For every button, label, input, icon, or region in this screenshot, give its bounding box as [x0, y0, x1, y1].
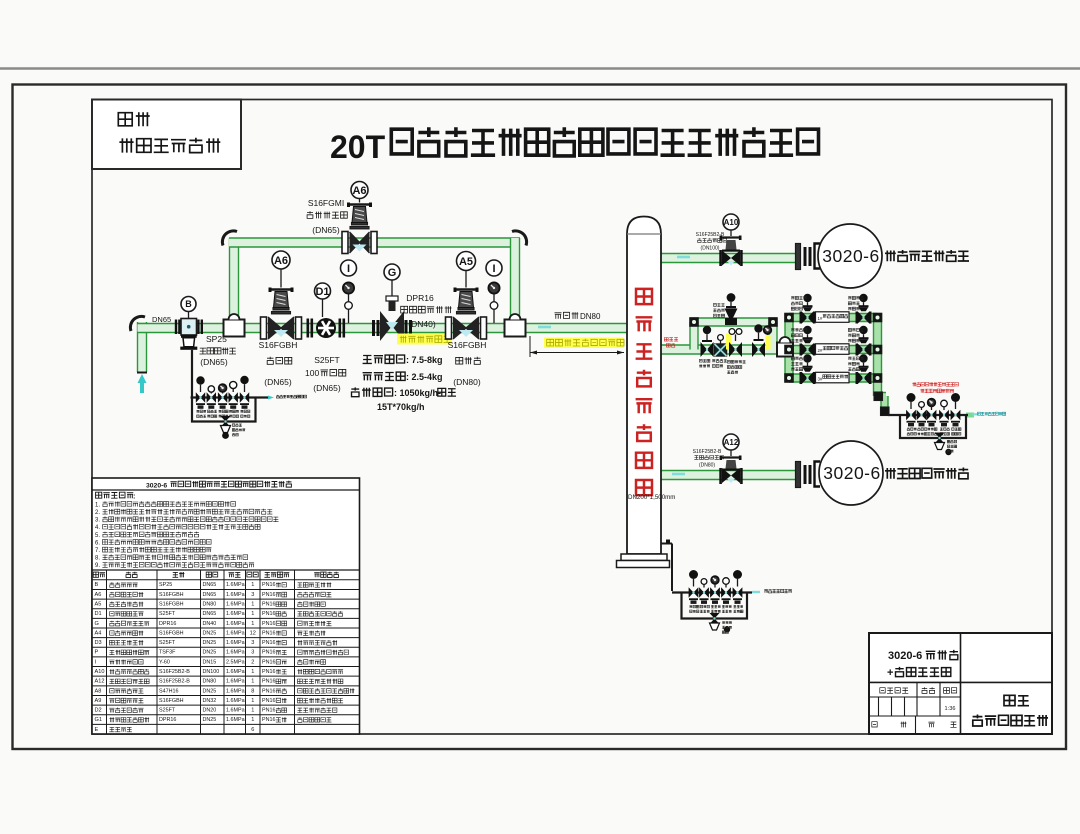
svg-text:1: 1: [251, 669, 254, 675]
svg-text:1.6MPa: 1.6MPa: [226, 592, 245, 598]
svg-text:1#: 1#: [818, 316, 823, 321]
svg-text:S16F25B2-B: S16F25B2-B: [159, 679, 190, 685]
svg-text:D1: D1: [95, 611, 102, 617]
svg-text:DN25: DN25: [203, 717, 217, 723]
svg-text:3020-6: 3020-6: [888, 650, 922, 662]
svg-text:PN16: PN16: [262, 582, 276, 588]
svg-text:100: 100: [305, 368, 319, 378]
svg-text:8: 8: [251, 688, 254, 694]
svg-text:A4: A4: [95, 630, 102, 636]
svg-text:S16F25B2-B: S16F25B2-B: [696, 232, 725, 238]
svg-text:: 2.5-4kg: : 2.5-4kg: [406, 372, 443, 382]
svg-text:1: 1: [251, 717, 254, 723]
svg-text:2.5MPa: 2.5MPa: [226, 659, 245, 665]
svg-text:(DN100): (DN100): [701, 246, 720, 252]
svg-text:1.6MPa: 1.6MPa: [226, 650, 245, 656]
svg-text:1: 1: [251, 621, 254, 627]
svg-text:1.6MPa: 1.6MPa: [226, 640, 245, 646]
svg-text:A5: A5: [95, 602, 102, 608]
svg-text:D1: D1: [315, 286, 329, 298]
svg-text:DPR16: DPR16: [159, 621, 176, 627]
svg-text:1.6MPa: 1.6MPa: [226, 698, 245, 704]
svg-text:PN16: PN16: [262, 650, 276, 656]
svg-text:G: G: [95, 621, 99, 627]
svg-text:(DN65): (DN65): [200, 357, 228, 367]
svg-text:A8: A8: [95, 688, 102, 694]
svg-text:12: 12: [250, 630, 256, 636]
svg-text:(DN80): (DN80): [699, 463, 715, 469]
svg-text:1.: 1.: [95, 502, 100, 508]
svg-text:PN16: PN16: [262, 602, 276, 608]
svg-text:1.6MPa: 1.6MPa: [226, 717, 245, 723]
svg-text:1.6MPa: 1.6MPa: [226, 611, 245, 617]
svg-text:3: 3: [251, 640, 254, 646]
svg-text:S47H16: S47H16: [159, 688, 178, 694]
svg-text:A10: A10: [724, 218, 739, 227]
svg-text:TSF3F: TSF3F: [159, 650, 176, 656]
svg-text:DN100: DN100: [203, 669, 220, 675]
svg-text:S25FT: S25FT: [159, 640, 176, 646]
svg-text:DN40: DN40: [203, 621, 217, 627]
svg-text:P: P: [95, 650, 99, 656]
svg-text:DPR16: DPR16: [159, 717, 176, 723]
svg-text:DN200*1,500mm: DN200*1,500mm: [628, 494, 675, 501]
svg-text:A6: A6: [274, 255, 288, 267]
svg-text:: 1050kg/h-: : 1050kg/h-: [394, 388, 441, 398]
svg-text:8.: 8.: [95, 556, 100, 562]
svg-text:PN16: PN16: [262, 698, 276, 704]
svg-text:4.: 4.: [95, 525, 100, 531]
svg-text:DN25: DN25: [203, 630, 217, 636]
svg-text:PN16: PN16: [262, 669, 276, 675]
svg-text:3: 3: [251, 650, 254, 656]
svg-text:1: 1: [251, 611, 254, 617]
svg-text:DN65: DN65: [152, 315, 171, 324]
svg-text:6: 6: [251, 727, 254, 733]
svg-text:I: I: [492, 263, 495, 275]
svg-text:2#: 2#: [818, 348, 823, 353]
svg-text:PN16: PN16: [262, 611, 276, 617]
svg-text:I: I: [347, 263, 350, 275]
svg-text:1.6MPa: 1.6MPa: [226, 708, 245, 714]
svg-text:+: +: [887, 667, 893, 679]
svg-text:SP25: SP25: [159, 582, 172, 588]
svg-text:1.6MPa: 1.6MPa: [226, 630, 245, 636]
svg-text:Y-60: Y-60: [159, 659, 170, 665]
svg-text:A5: A5: [459, 256, 473, 268]
svg-text:1:36: 1:36: [945, 706, 956, 712]
svg-text:DN20: DN20: [203, 708, 217, 714]
svg-text:DN80: DN80: [580, 312, 601, 321]
svg-text:S16FGBH: S16FGBH: [159, 602, 184, 608]
svg-text:DN25: DN25: [203, 640, 217, 646]
svg-text:DN80: DN80: [203, 679, 217, 685]
svg-text:PN16: PN16: [262, 640, 276, 646]
svg-text:3.: 3.: [95, 518, 100, 524]
svg-text:S25FT: S25FT: [159, 708, 176, 714]
svg-text:(DN65): (DN65): [264, 377, 292, 387]
svg-text:DN80: DN80: [203, 602, 217, 608]
svg-text:PN16: PN16: [262, 621, 276, 627]
svg-text:G: G: [388, 267, 397, 279]
svg-text:1: 1: [251, 708, 254, 714]
svg-text:A12: A12: [95, 679, 105, 685]
svg-text:PN16: PN16: [262, 659, 276, 665]
svg-text:S16FGBH: S16FGBH: [159, 630, 184, 636]
svg-text:1: 1: [251, 602, 254, 608]
svg-text:PN16: PN16: [262, 630, 276, 636]
svg-text:SP25: SP25: [206, 334, 227, 344]
svg-text:1: 1: [251, 582, 254, 588]
svg-text:3020-6: 3020-6: [822, 246, 880, 266]
svg-text:2.: 2.: [95, 510, 100, 516]
svg-text:B: B: [185, 299, 192, 309]
svg-text:1.6MPa: 1.6MPa: [226, 688, 245, 694]
svg-text:5.: 5.: [95, 533, 100, 539]
svg-text:A10: A10: [95, 669, 105, 675]
svg-text:6.: 6.: [95, 540, 100, 546]
svg-text:A9: A9: [95, 698, 102, 704]
svg-text:S16FGBH: S16FGBH: [259, 340, 298, 350]
svg-text:3020-6: 3020-6: [146, 483, 167, 490]
svg-text:B: B: [95, 582, 99, 588]
svg-text:S25FT: S25FT: [314, 355, 340, 365]
svg-text:PN16: PN16: [262, 717, 276, 723]
svg-text:A6: A6: [352, 185, 366, 197]
svg-text:DN32: DN32: [203, 698, 217, 704]
svg-text:2: 2: [251, 659, 254, 665]
svg-text:: 7.5-8kg: : 7.5-8kg: [406, 355, 443, 365]
svg-text:1.6MPa: 1.6MPa: [226, 679, 245, 685]
svg-text:S16FGMI: S16FGMI: [308, 198, 344, 208]
svg-text:G1: G1: [95, 717, 102, 723]
svg-text:D3: D3: [95, 640, 102, 646]
svg-text:PN16: PN16: [262, 679, 276, 685]
svg-text:S16FGBH: S16FGBH: [448, 340, 487, 350]
svg-text:1.6MPa: 1.6MPa: [226, 621, 245, 627]
svg-text:DN15: DN15: [203, 659, 217, 665]
svg-text:DN25: DN25: [203, 688, 217, 694]
svg-text::: :: [133, 492, 135, 501]
svg-text:DN25: DN25: [203, 650, 217, 656]
svg-text:E: E: [95, 727, 99, 733]
svg-text:1.6MPa: 1.6MPa: [226, 582, 245, 588]
svg-text:(DN65): (DN65): [312, 225, 340, 235]
svg-text:S16FGBH: S16FGBH: [159, 592, 184, 598]
svg-text:D2: D2: [95, 708, 102, 714]
svg-text:PN16: PN16: [262, 592, 276, 598]
svg-text:20T: 20T: [330, 129, 386, 165]
svg-text:3: 3: [251, 592, 254, 598]
svg-text:15T*70kg/h: 15T*70kg/h: [377, 402, 425, 412]
svg-text:DN65: DN65: [203, 582, 217, 588]
svg-text:PN16: PN16: [262, 708, 276, 714]
svg-text:1.6MPa: 1.6MPa: [226, 669, 245, 675]
svg-text:9.: 9.: [95, 563, 100, 569]
svg-text:DN65: DN65: [203, 611, 217, 617]
svg-text:PN16: PN16: [262, 688, 276, 694]
svg-text:DPR16: DPR16: [406, 293, 434, 303]
svg-text:1.6MPa: 1.6MPa: [226, 602, 245, 608]
svg-text:7.: 7.: [95, 548, 100, 554]
svg-text:3#: 3#: [818, 377, 823, 382]
svg-text:(DN65): (DN65): [313, 383, 341, 393]
svg-text:S16FGBH: S16FGBH: [159, 698, 184, 704]
svg-text:(DN40): (DN40): [408, 319, 436, 329]
svg-text:(DN80): (DN80): [453, 377, 481, 387]
svg-text:S16F25B2-B: S16F25B2-B: [693, 449, 722, 455]
svg-text:S25FT: S25FT: [159, 611, 176, 617]
svg-text:S16F25B2-B: S16F25B2-B: [159, 669, 190, 675]
svg-text:3020-6: 3020-6: [823, 463, 881, 483]
svg-text:A12: A12: [724, 438, 739, 447]
svg-text:DN65: DN65: [203, 592, 217, 598]
svg-text:1: 1: [251, 679, 254, 685]
svg-text:A6: A6: [95, 592, 102, 598]
svg-text:1: 1: [251, 698, 254, 704]
